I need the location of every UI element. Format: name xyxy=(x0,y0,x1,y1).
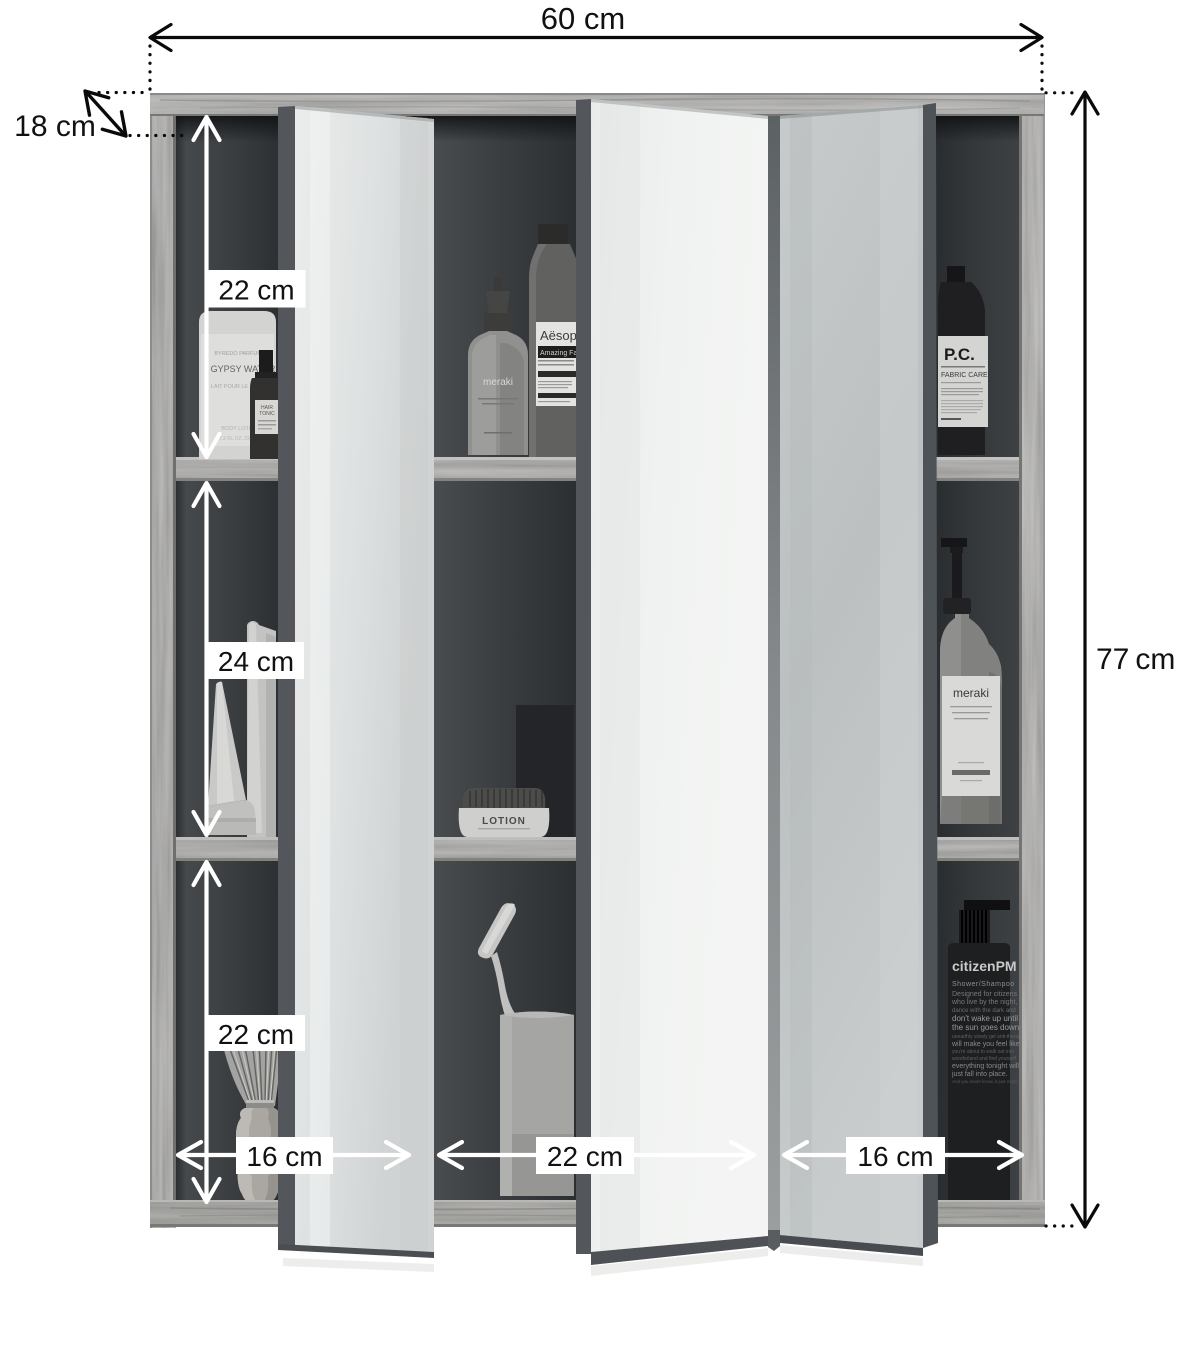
svg-text:who live by the night,: who live by the night, xyxy=(951,999,1017,1006)
svg-text:don't wake up until: don't wake up until xyxy=(952,1014,1018,1023)
svg-text:FABRIC CARE: FABRIC CARE xyxy=(941,372,988,379)
svg-text:everything tonight will: everything tonight will xyxy=(952,1063,1019,1070)
svg-text:will make you feel like: will make you feel like xyxy=(951,1041,1020,1048)
svg-text:just fall into place.: just fall into place. xyxy=(951,1071,1008,1078)
svg-text:meraki: meraki xyxy=(953,686,989,700)
svg-text:the sun goes down.: the sun goes down. xyxy=(952,1023,1021,1032)
svg-text:you're about to walk out into: you're about to walk out into xyxy=(952,1049,1014,1055)
svg-text:60 cm: 60 cm xyxy=(541,1,625,36)
svg-text:22 cm: 22 cm xyxy=(547,1141,623,1172)
svg-text:Amazing Fac: Amazing Fac xyxy=(540,350,581,357)
svg-text:P.C.: P.C. xyxy=(944,345,975,364)
svg-text:BYREDO PARFUMS: BYREDO PARFUMS xyxy=(214,351,266,357)
svg-text:77cm: 77cm xyxy=(1096,643,1175,676)
svg-text:Designed for citizens: Designed for citizens xyxy=(952,991,1017,998)
svg-text:unearthly slowly gel anti-ther: unearthly slowly gel anti-therapy xyxy=(952,1034,1024,1040)
svg-text:24 cm: 24 cm xyxy=(218,646,294,677)
svg-text:Aësop.: Aësop. xyxy=(540,328,580,343)
svg-text:meraki: meraki xyxy=(483,377,513,388)
svg-text:18 cm: 18 cm xyxy=(14,110,96,143)
svg-text:TONIC: TONIC xyxy=(259,411,275,417)
svg-text:16 cm: 16 cm xyxy=(857,1141,933,1172)
svg-text:wonderland and find yourself: wonderland and find yourself xyxy=(952,1056,1017,1062)
svg-text:citizenPM: citizenPM xyxy=(952,958,1017,974)
svg-text:LOTION: LOTION xyxy=(482,816,526,827)
svg-text:16 cm: 16 cm xyxy=(246,1141,322,1172)
svg-text:22 cm: 22 cm xyxy=(218,1019,294,1050)
svg-text:Shower/Shampoo: Shower/Shampoo xyxy=(952,981,1015,988)
svg-text:And you never know, it just mi: And you never know, it just might. xyxy=(952,1079,1019,1084)
svg-text:22 cm: 22 cm xyxy=(218,275,294,306)
